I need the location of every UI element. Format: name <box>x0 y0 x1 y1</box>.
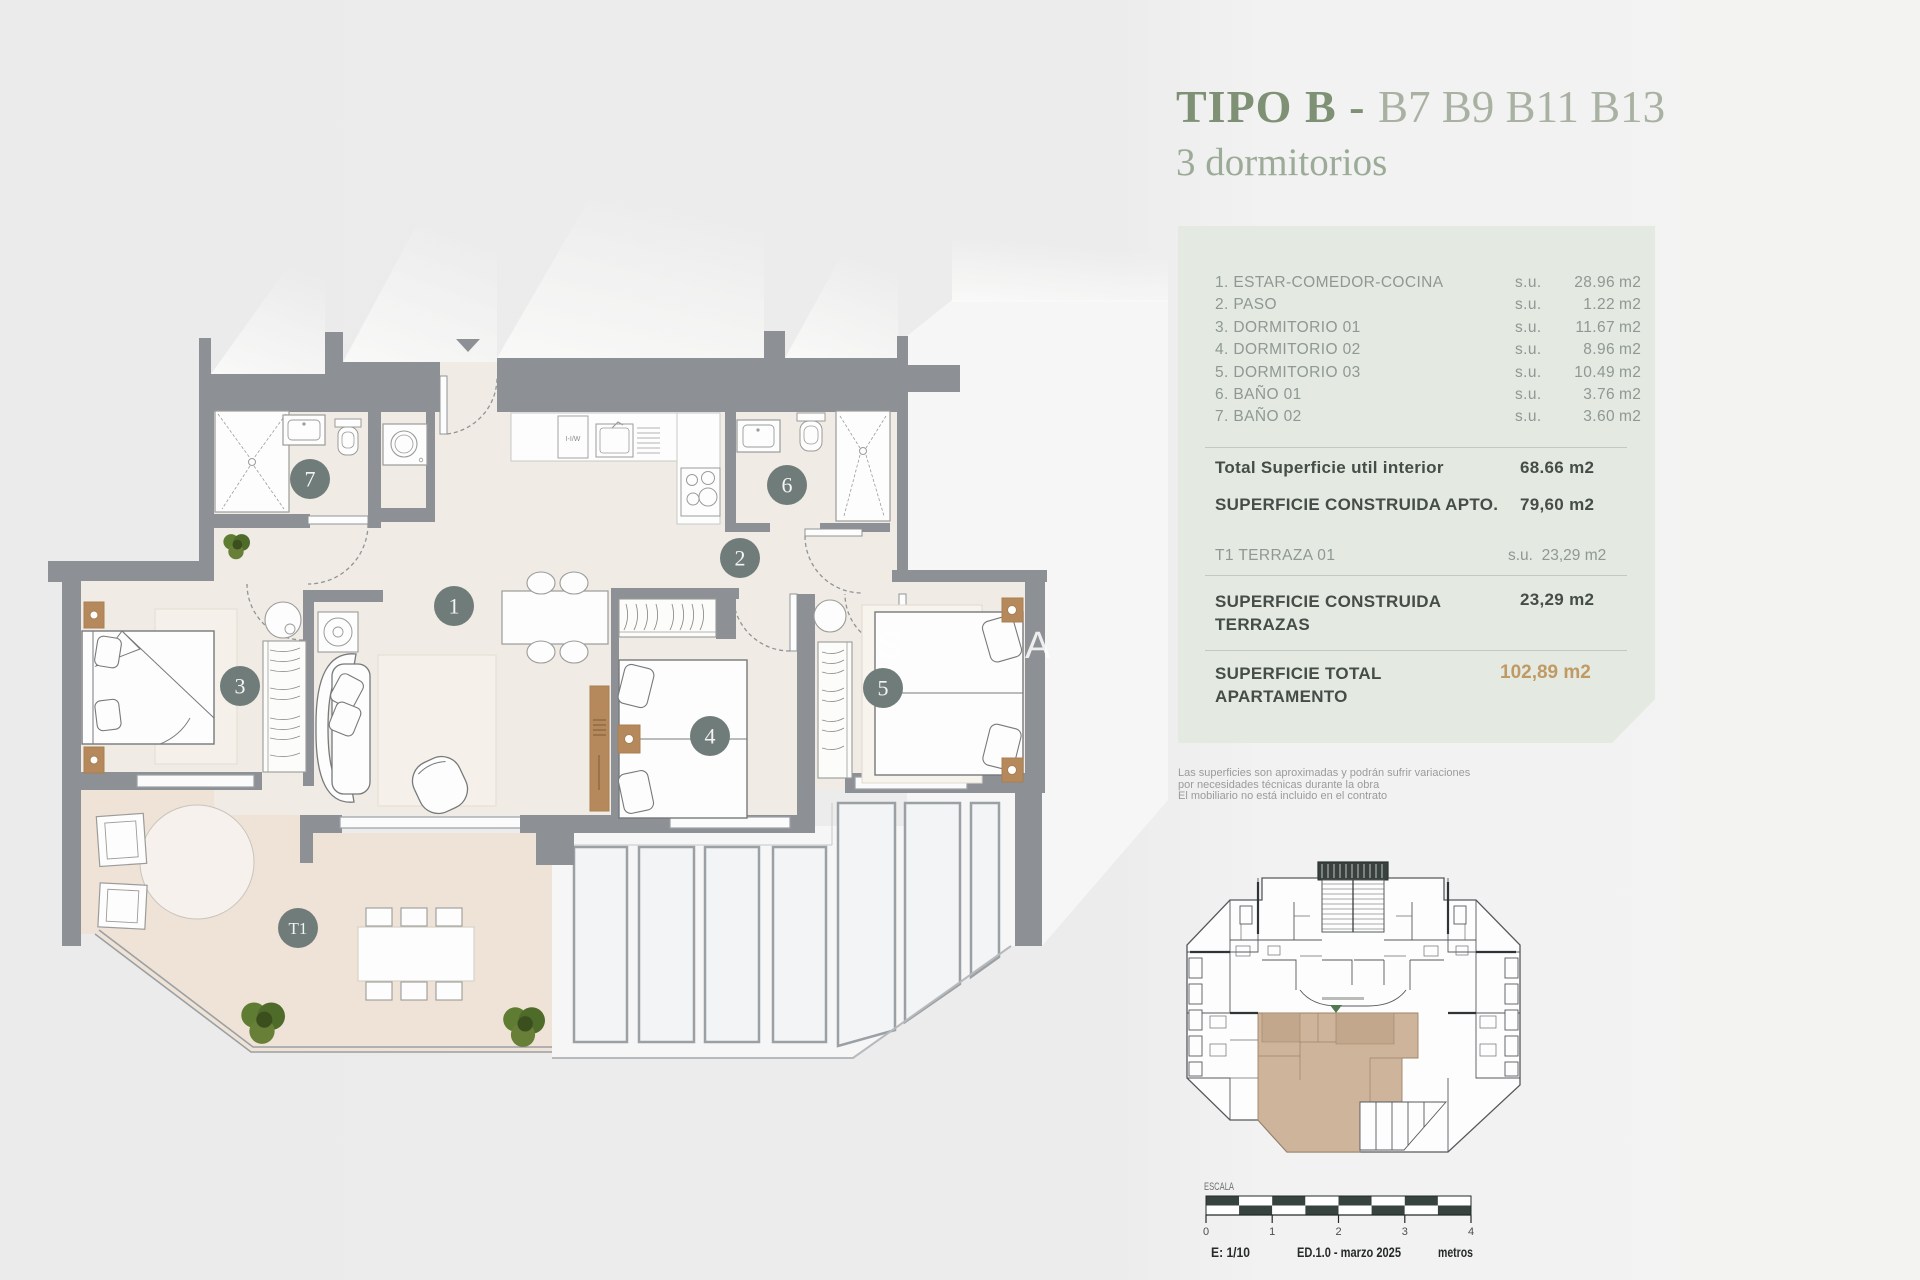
svg-text:4: 4 <box>705 724 716 749</box>
svg-text:A: A <box>1025 625 1051 667</box>
svg-text:3: 3 <box>235 674 246 699</box>
svg-text:S: S <box>877 625 902 667</box>
svg-text:5: 5 <box>878 676 889 701</box>
svg-text:E: 1/10: E: 1/10 <box>1211 1244 1250 1260</box>
svg-text:6: 6 <box>782 473 793 498</box>
svg-text:3: 3 <box>1402 1226 1408 1238</box>
svg-text:4: 4 <box>1468 1226 1474 1238</box>
svg-text:T1: T1 <box>289 919 308 938</box>
svg-text:ED.1.0 - marzo 2025: ED.1.0 - marzo 2025 <box>1297 1244 1401 1260</box>
svg-text:ESCALA: ESCALA <box>1204 1181 1234 1193</box>
svg-text:0: 0 <box>1203 1226 1209 1238</box>
svg-text:2: 2 <box>735 546 746 571</box>
svg-text:I-I/W: I-I/W <box>566 436 581 443</box>
svg-text:2: 2 <box>1335 1226 1341 1238</box>
svg-text:1: 1 <box>1269 1226 1275 1238</box>
svg-text:metros: metros <box>1438 1244 1473 1260</box>
svg-text:7: 7 <box>305 467 316 492</box>
svg-text:1: 1 <box>449 594 460 619</box>
